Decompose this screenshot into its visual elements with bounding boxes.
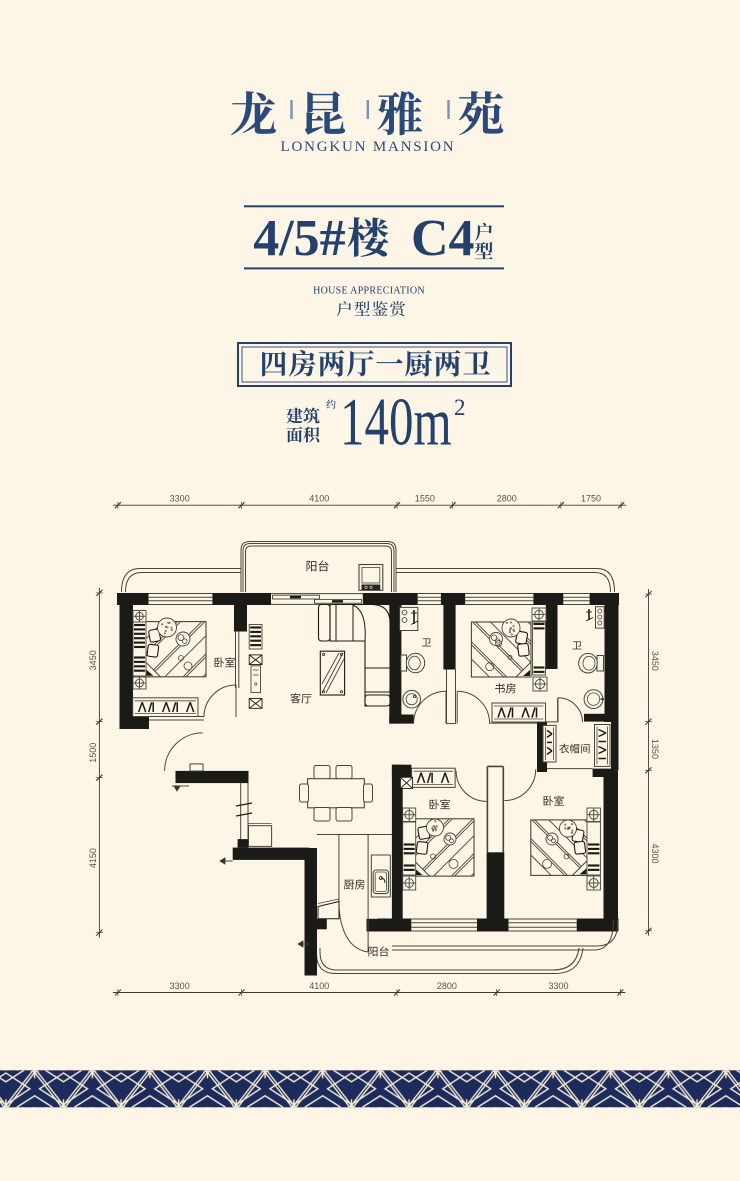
svg-text:HOUSE APPRECIATION: HOUSE APPRECIATION xyxy=(313,286,425,297)
svg-text:3300: 3300 xyxy=(170,494,190,504)
svg-text:4300: 4300 xyxy=(650,844,660,864)
svg-text:2800: 2800 xyxy=(437,981,457,991)
svg-text:1750: 1750 xyxy=(581,494,601,504)
svg-text:4150: 4150 xyxy=(88,848,98,868)
svg-text:2800: 2800 xyxy=(497,494,517,504)
svg-text:4/5#: 4/5# xyxy=(253,210,345,267)
svg-text:4100: 4100 xyxy=(309,981,329,991)
svg-text:LONGKUN MANSION: LONGKUN MANSION xyxy=(281,139,456,155)
svg-text:1550: 1550 xyxy=(415,494,435,504)
svg-text:1350: 1350 xyxy=(650,739,660,759)
svg-text:4100: 4100 xyxy=(309,494,329,504)
svg-text:3300: 3300 xyxy=(170,981,190,991)
svg-text:3300: 3300 xyxy=(548,981,568,991)
svg-text:3450: 3450 xyxy=(650,651,660,671)
svg-text:C4: C4 xyxy=(411,210,475,267)
svg-text:1500: 1500 xyxy=(88,743,98,763)
svg-text:140m: 140m xyxy=(340,384,452,460)
svg-text:3450: 3450 xyxy=(88,650,98,670)
svg-text:2: 2 xyxy=(454,395,466,420)
